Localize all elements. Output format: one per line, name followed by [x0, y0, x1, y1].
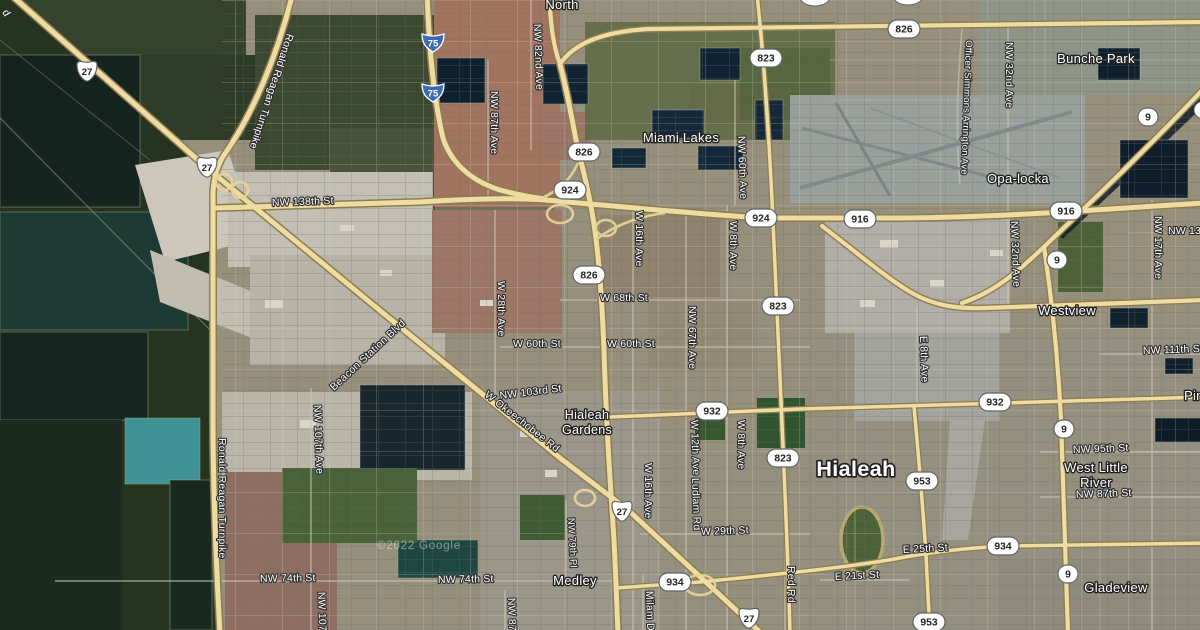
- svg-text:934: 934: [666, 578, 683, 589]
- sr-9-shield-icon: 9: [1138, 108, 1158, 126]
- svg-text:9: 9: [1145, 113, 1151, 124]
- sr-934-shield-icon: 934: [659, 573, 691, 591]
- sr-826-shield-icon: 826: [888, 20, 920, 38]
- svg-text:932: 932: [986, 398, 1003, 409]
- sr-823-shield-icon: 823: [762, 297, 794, 315]
- svg-text:75: 75: [428, 89, 439, 100]
- svg-text:932: 932: [703, 407, 720, 418]
- sr-934-shield-icon: 934: [987, 537, 1019, 555]
- place-label-bunche-park: Bunche Park: [1057, 51, 1135, 66]
- sr-932-shield-icon: 932: [979, 393, 1011, 411]
- road-label-w-16th-ave: W 16th Ave: [642, 463, 654, 519]
- sr-9-shield-icon: 9: [1047, 251, 1067, 269]
- road-label-w-8th-ave: W 8th Ave: [735, 420, 747, 469]
- svg-text:823: 823: [757, 54, 774, 65]
- road-label-w-16th-ave: W 16th Ave: [633, 211, 645, 267]
- sr-932-shield-icon: 932: [696, 402, 728, 420]
- satellite-map-svg: ©2022 Google 75 75 27 27 27: [0, 0, 1200, 630]
- place-label-miami-lakes: Miami Lakes: [643, 130, 719, 145]
- place-label-hialeah-gardens: Gardens: [562, 423, 612, 437]
- road-label-w-60th-st: W 60th St: [607, 338, 655, 350]
- road-label-w-60th-st: W 60th St: [513, 338, 561, 350]
- road-label-nw-82nd-ave: NW 82nd Ave: [531, 24, 545, 91]
- sr-9-shield-icon: 9: [1054, 420, 1074, 438]
- road-label-nw-74th-st: NW 74th St: [260, 572, 316, 585]
- place-label-medley: Medley: [553, 573, 597, 588]
- road-label-w-12th-ave: W 12th Ave: [688, 420, 702, 476]
- place-label-gladeview: Gladeview: [1084, 580, 1148, 595]
- road-label-milam-dairy-partial: Milam D: [643, 591, 656, 630]
- road-label-nw-67th-ave: NW 67th Ave: [686, 306, 698, 369]
- road-label-nw-111th-st: NW 111th St: [1143, 343, 1200, 357]
- place-label-hialeah-gardens: Hialeah: [565, 408, 610, 422]
- road-label-e-25th-st: E 25th St: [903, 542, 949, 556]
- road-label-e-8th-ave: E 8th Ave: [917, 336, 931, 383]
- map-attribution: ©2022 Google: [377, 540, 461, 552]
- svg-text:826: 826: [580, 271, 597, 282]
- road-label-nw-107th-ave: NW 107th Ave: [311, 405, 325, 475]
- road-label-nw-32nd-ave: NW 32nd Ave: [1008, 221, 1022, 288]
- road-label-w-8th-ave: W 8th Ave: [727, 221, 739, 270]
- road-label-w-28th-ave: W 28th Ave: [495, 281, 507, 337]
- road-label-w-68th-st: W 68th St: [600, 292, 648, 304]
- place-label-north-partial: North: [545, 0, 578, 12]
- road-label-nw-131-partial: NW 131: [1168, 225, 1200, 237]
- svg-text:9: 9: [1061, 425, 1067, 436]
- svg-text:953: 953: [920, 618, 937, 629]
- svg-text:953: 953: [913, 477, 930, 488]
- road-label-nw-87th-ave: NW 87th Ave: [488, 91, 500, 154]
- sr-953-shield-icon: 953: [906, 472, 938, 490]
- sr-953-shield-icon: 953: [913, 613, 945, 630]
- svg-text:916: 916: [851, 215, 868, 226]
- road-label-nw-138th-st: NW 138th St: [272, 195, 334, 209]
- satellite-map-canvas[interactable]: ©2022 Google 75 75 27 27 27: [0, 0, 1200, 630]
- svg-text:934: 934: [994, 542, 1011, 553]
- svg-text:823: 823: [774, 454, 791, 465]
- svg-text:27: 27: [82, 67, 93, 78]
- place-label-west-little-river: West Little: [1064, 460, 1128, 475]
- svg-text:9: 9: [1054, 256, 1060, 267]
- sr-823-shield-icon: 823: [767, 449, 799, 467]
- road-label-nw-32nd-ave: NW 32nd Ave: [1003, 42, 1015, 108]
- place-label-west-little-river: River: [1080, 475, 1112, 490]
- sr-916-shield-icon: 916: [844, 210, 876, 228]
- svg-text:75: 75: [428, 39, 439, 50]
- road-label-red-rd: Red Rd: [785, 566, 797, 603]
- place-label-pinewood-partial: Pin: [1184, 388, 1200, 403]
- svg-text:27: 27: [744, 614, 755, 625]
- road-label-ronald-reagan-turnpike: Ronald Reagan Turnpike: [216, 438, 228, 559]
- road-label-ludlam-rd: Ludlam Rd: [689, 478, 703, 531]
- sr-826-shield-icon: 826: [568, 143, 600, 161]
- sr-826-shield-icon: 826: [573, 266, 605, 284]
- svg-text:27: 27: [617, 507, 628, 518]
- svg-text:27: 27: [202, 163, 213, 174]
- sr-924-shield-icon: 924: [745, 209, 777, 227]
- svg-text:826: 826: [575, 148, 592, 159]
- road-label-nw-60th-ave: NW 60th Ave: [735, 136, 749, 200]
- road-label-nw-95th-st: NW 95th St: [1073, 442, 1129, 456]
- road-label-nw-87-partial: NW 87t: [505, 598, 518, 630]
- road-label-nw-107th-ave-partial: NW 107t: [315, 592, 328, 630]
- svg-text:826: 826: [895, 25, 912, 36]
- place-label-westview: Westview: [1038, 303, 1096, 318]
- road-label-nw-17th-ave: NW 17th Ave: [1152, 216, 1164, 279]
- road-label-w-29th-st: W 29th St: [701, 524, 749, 538]
- road-label-e-21st-st: E 21st St: [835, 569, 880, 583]
- sr-924-shield-icon: 924: [554, 181, 586, 199]
- sr-9-shield-icon: 9: [1058, 565, 1078, 583]
- svg-text:823: 823: [769, 302, 786, 313]
- svg-text:9: 9: [1065, 570, 1071, 581]
- sr-823-shield-icon: 823: [750, 49, 782, 67]
- svg-text:924: 924: [561, 186, 578, 197]
- road-label-nw-74th-st: NW 74th St: [438, 573, 494, 586]
- svg-text:916: 916: [1057, 207, 1074, 218]
- sr-916-shield-icon: 916: [1050, 202, 1082, 220]
- place-label-hialeah: Hialeah: [816, 457, 895, 481]
- svg-text:924: 924: [752, 214, 769, 225]
- place-label-opa-locka: Opa-locka: [987, 171, 1049, 186]
